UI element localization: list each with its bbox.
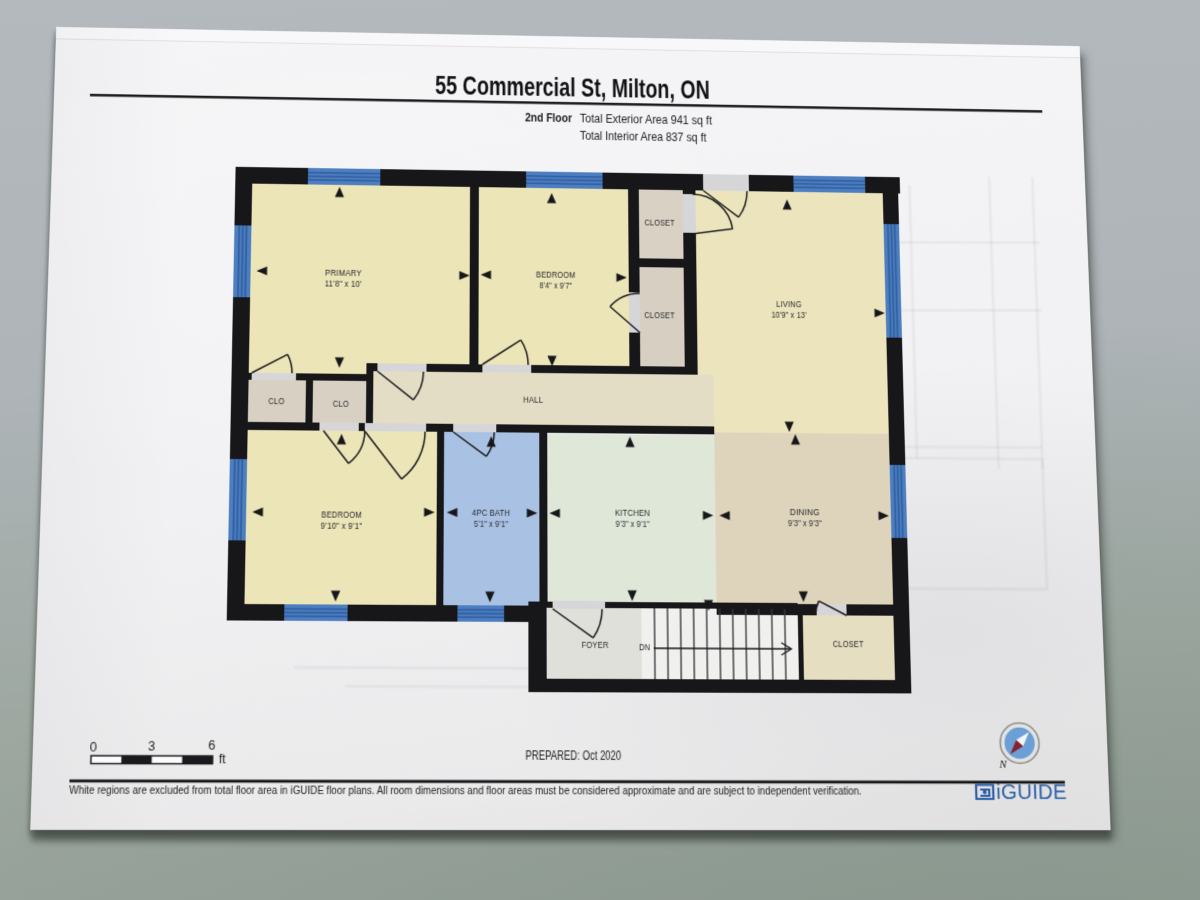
svg-text:CLO: CLO xyxy=(268,397,284,406)
svg-text:LIVING: LIVING xyxy=(776,300,802,309)
svg-text:DN: DN xyxy=(639,643,650,653)
svg-text:CLOSET: CLOSET xyxy=(833,640,864,650)
svg-text:CLOSET: CLOSET xyxy=(644,218,674,227)
svg-text:5’1" x 9’1": 5’1" x 9’1" xyxy=(474,520,508,530)
svg-text:FOYER: FOYER xyxy=(582,641,609,651)
svg-text:PREPARED: Oct 2020: PREPARED: Oct 2020 xyxy=(525,750,621,764)
svg-text:HALL: HALL xyxy=(523,395,543,404)
svg-text:BEDROOM: BEDROOM xyxy=(536,270,576,280)
svg-text:6: 6 xyxy=(208,738,216,753)
svg-text:55 Commercial St, Milton, ON: 55 Commercial St, Milton, ON xyxy=(435,70,710,104)
svg-text:Total Exterior Area 941 sq ft: Total Exterior Area 941 sq ft xyxy=(580,112,713,128)
svg-text:KITCHEN: KITCHEN xyxy=(615,508,650,518)
svg-text:11’8" x 10’: 11’8" x 10’ xyxy=(325,279,362,289)
svg-text:ft: ft xyxy=(219,753,227,767)
svg-text:White regions are excluded fro: White regions are excluded from total fl… xyxy=(69,785,862,798)
svg-text:8’4" x 9’7": 8’4" x 9’7" xyxy=(540,281,573,290)
svg-text:3: 3 xyxy=(148,739,156,754)
svg-text:DINING: DINING xyxy=(790,508,820,517)
svg-text:Total Interior Area 837 sq ft: Total Interior Area 837 sq ft xyxy=(580,129,707,145)
svg-text:CLO: CLO xyxy=(333,399,349,408)
svg-text:iGUIDE: iGUIDE xyxy=(996,780,1067,803)
svg-text:9’10" x 9’1": 9’10" x 9’1" xyxy=(321,521,363,531)
svg-text:CLOSET: CLOSET xyxy=(644,311,675,320)
svg-text:0: 0 xyxy=(90,740,98,755)
svg-text:BEDROOM: BEDROOM xyxy=(321,510,362,520)
svg-text:9’3" x 9’3": 9’3" x 9’3" xyxy=(788,519,822,529)
svg-text:2nd Floor: 2nd Floor xyxy=(525,111,572,126)
svg-text:10’9" x 13’: 10’9" x 13’ xyxy=(771,311,806,320)
svg-text:9’3" x 9’1": 9’3" x 9’1" xyxy=(616,520,650,530)
svg-text:N: N xyxy=(998,758,1008,771)
svg-text:PRIMARY: PRIMARY xyxy=(325,269,362,279)
svg-text:4PC BATH: 4PC BATH xyxy=(472,508,510,518)
